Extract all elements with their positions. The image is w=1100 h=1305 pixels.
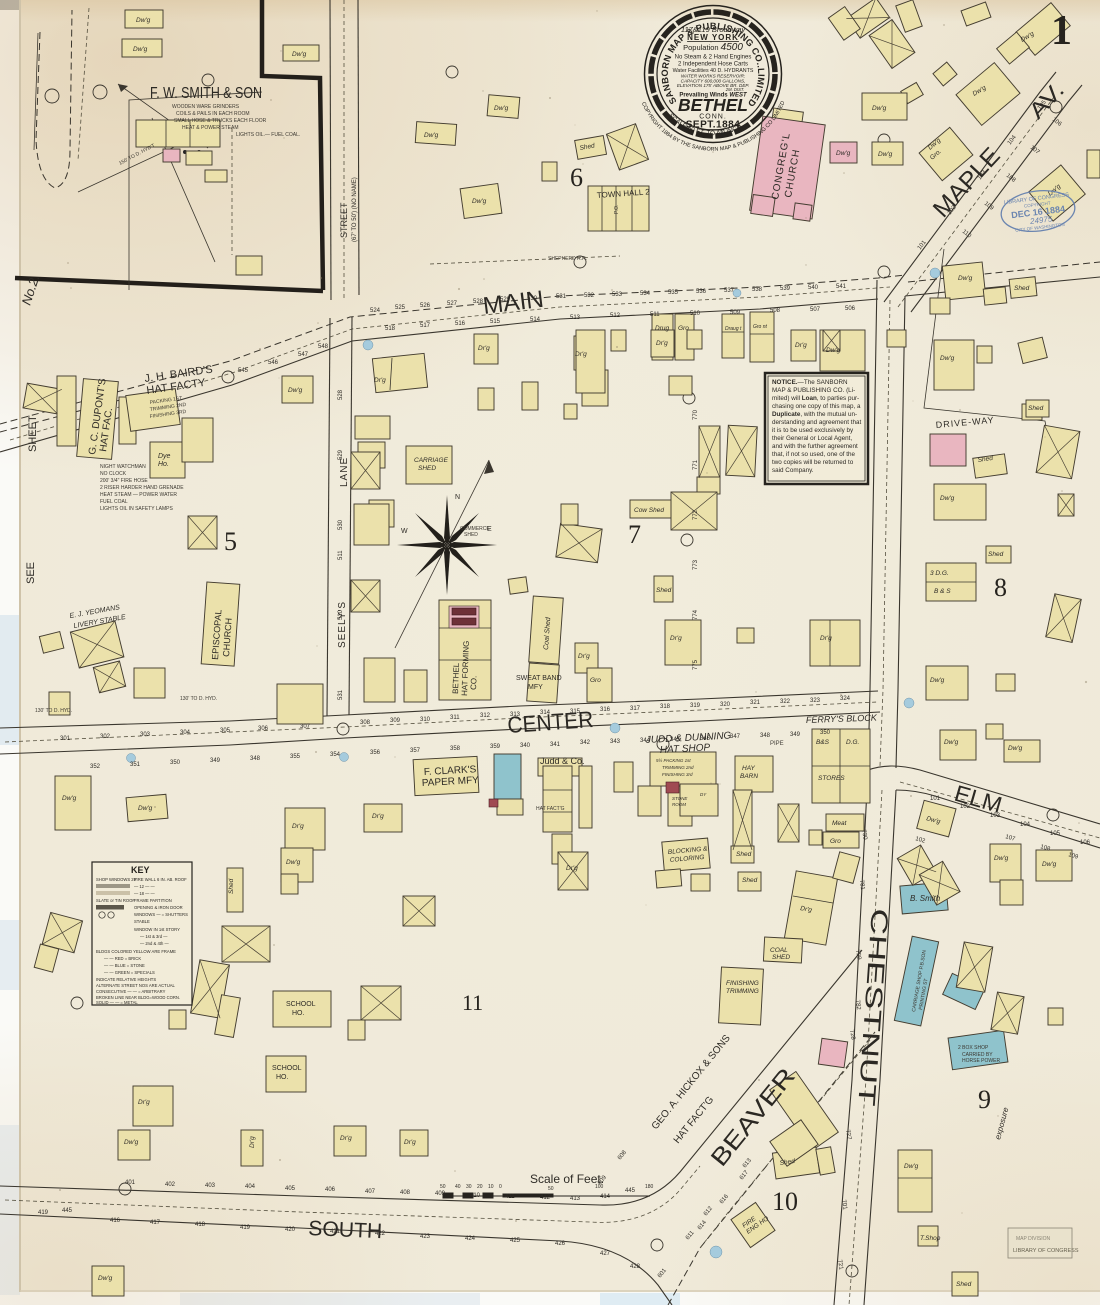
svg-text:INDICATE RELATIVE HEIGHTS: INDICATE RELATIVE HEIGHTS: [96, 977, 156, 982]
svg-text:MAP DIVISION: MAP DIVISION: [1016, 1236, 1050, 1242]
svg-text:Dw'g: Dw'g: [826, 347, 841, 354]
svg-text:said Company.: said Company.: [772, 467, 814, 474]
svg-text:SEPT.1884: SEPT.1884: [686, 120, 741, 131]
svg-text:314: 314: [540, 710, 551, 716]
svg-text:308: 308: [360, 720, 371, 726]
svg-text:Drug: Drug: [655, 325, 669, 332]
svg-text:Draug t: Draug t: [725, 326, 742, 332]
svg-text:Dr'g: Dr'g: [478, 345, 490, 352]
svg-text:445: 445: [625, 1188, 636, 1194]
svg-text:— — RED = BRICK: — — RED = BRICK: [104, 956, 141, 961]
svg-text:Judd & Co.: Judd & Co.: [540, 756, 585, 766]
svg-text:2 BOX SHOP: 2 BOX SHOP: [958, 1045, 989, 1051]
svg-text:Cow Shed: Cow Shed: [634, 507, 664, 514]
svg-text:420: 420: [285, 1227, 296, 1233]
svg-text:405: 405: [285, 1186, 296, 1192]
svg-text:773: 773: [693, 559, 699, 570]
svg-text:D.G.: D.G.: [846, 739, 860, 746]
svg-text:— 18 — —: — 18 — —: [134, 891, 156, 896]
svg-text:356: 356: [370, 750, 381, 756]
svg-text:322: 322: [780, 699, 791, 705]
svg-text:STREET: STREET: [339, 202, 349, 238]
svg-text:P.O.: P.O.: [614, 205, 620, 214]
svg-text:SHEET: SHEET: [27, 415, 39, 452]
svg-text:782: 782: [854, 1000, 861, 1011]
svg-text:532: 532: [584, 293, 595, 299]
svg-text:539: 539: [780, 286, 791, 292]
svg-text:FINISHING: FINISHING: [726, 980, 759, 987]
svg-text:NOTICE.—The SANBORN: NOTICE.—The SANBORN: [772, 379, 848, 386]
svg-text:425: 425: [510, 1238, 521, 1244]
svg-text:SLATE or TIN ROOF: SLATE or TIN ROOF: [96, 898, 135, 903]
svg-text:Dw'g: Dw'g: [940, 355, 955, 362]
svg-text:408: 408: [400, 1190, 411, 1196]
svg-text:535: 535: [668, 290, 679, 296]
svg-text:Dw'g: Dw'g: [944, 739, 959, 746]
svg-text:WOODEN WARE GRINDERS: WOODEN WARE GRINDERS: [172, 104, 240, 110]
svg-text:that, if not so used, one of t: that, if not so used, one of the: [772, 451, 855, 458]
svg-text:Shed: Shed: [988, 551, 1004, 558]
svg-text:Meat: Meat: [832, 820, 848, 827]
svg-text:Shed: Shed: [1028, 405, 1044, 412]
svg-text:410: 410: [470, 1193, 481, 1199]
svg-text:FRAME PARTITION: FRAME PARTITION: [134, 898, 172, 903]
svg-text:Dw'g: Dw'g: [836, 150, 851, 157]
svg-text:528: 528: [473, 299, 484, 305]
svg-text:LIBRARY OF CONGRESS: LIBRARY OF CONGRESS: [1013, 1248, 1079, 1254]
svg-text:416: 416: [110, 1218, 121, 1224]
svg-text:Dr'g: Dr'g: [340, 1135, 352, 1142]
svg-text:180: 180: [645, 1184, 654, 1190]
svg-text:Dw'g: Dw'g: [472, 198, 487, 205]
svg-text:HEAT STEAM — POWER WATER: HEAT STEAM — POWER WATER: [100, 492, 177, 498]
svg-text:NO CLOCK: NO CLOCK: [100, 471, 127, 477]
svg-text:422: 422: [375, 1231, 386, 1237]
svg-text:518: 518: [385, 326, 396, 332]
svg-text:MFY: MFY: [528, 684, 543, 691]
svg-text:Dw'g: Dw'g: [940, 495, 955, 502]
svg-text:533: 533: [612, 292, 623, 298]
svg-text:345: 345: [670, 737, 681, 743]
svg-text:343: 343: [610, 739, 621, 745]
svg-text:310: 310: [420, 717, 431, 723]
svg-text:Dw'g: Dw'g: [878, 151, 893, 158]
svg-text:355: 355: [290, 754, 301, 760]
svg-text:411: 411: [505, 1194, 515, 1200]
svg-text:— 1st & 3rd —: — 1st & 3rd —: [140, 934, 168, 939]
svg-text:derstanding and agreement that: derstanding and agreement that: [772, 419, 862, 426]
svg-text:Dr'g: Dr'g: [249, 1136, 256, 1148]
svg-text:302: 302: [100, 734, 111, 740]
svg-text:Dr'g: Dr'g: [820, 635, 832, 642]
svg-text:771: 771: [693, 459, 699, 470]
svg-text:509: 509: [730, 310, 741, 316]
svg-text:531: 531: [556, 294, 567, 300]
svg-text:412: 412: [540, 1195, 551, 1201]
svg-text:Dw'g: Dw'g: [286, 859, 301, 866]
svg-text:HO.: HO.: [292, 1010, 305, 1017]
svg-text:516: 516: [455, 321, 466, 327]
svg-text:Dw'g: Dw'g: [133, 46, 148, 53]
svg-text:Dr'g: Dr'g: [138, 1099, 150, 1106]
svg-text:507: 507: [810, 307, 821, 313]
svg-text:ALTERNATE STREET NOS ARE ACTUA: ALTERNATE STREET NOS ARE ACTUAL: [96, 983, 176, 988]
svg-text:Gro: Gro: [590, 677, 601, 684]
svg-text:0: 0: [499, 1184, 502, 1190]
svg-text:Shed: Shed: [956, 1281, 972, 1288]
svg-text:349: 349: [210, 758, 221, 764]
svg-text:Dr'g: Dr'g: [372, 813, 384, 820]
svg-text:SMALL HOSE & TRUCKS EACH FLOOR: SMALL HOSE & TRUCKS EACH FLOOR: [174, 118, 267, 124]
svg-text:130' TO D. HYD.: 130' TO D. HYD.: [35, 708, 72, 714]
svg-text:517: 517: [420, 323, 431, 329]
svg-text:534: 534: [640, 291, 651, 297]
svg-text:358: 358: [450, 746, 461, 752]
svg-text:SEE: SEE: [25, 562, 37, 584]
svg-text:and with the further agreement: and with the further agreement: [772, 443, 858, 450]
svg-text:307: 307: [300, 724, 311, 730]
svg-text:HAT FACT'G: HAT FACT'G: [536, 806, 565, 812]
svg-text:chasing one copy of this map,: chasing one copy of this map, a: [772, 403, 861, 410]
svg-text:5: 5: [224, 527, 237, 556]
svg-text:303: 303: [140, 732, 151, 738]
svg-text:406: 406: [325, 1187, 336, 1193]
svg-text:413: 413: [570, 1196, 581, 1202]
svg-text:Dr'g: Dr'g: [374, 377, 386, 384]
svg-text:402: 402: [165, 1182, 176, 1188]
svg-text:407: 407: [365, 1189, 376, 1195]
svg-text:305: 305: [220, 728, 231, 734]
svg-text:538: 538: [752, 287, 763, 293]
svg-text:Population 4500: Population 4500: [683, 42, 743, 53]
svg-text:775: 775: [693, 659, 699, 670]
svg-text:NEW YORK: NEW YORK: [687, 33, 739, 42]
svg-text:359: 359: [490, 744, 501, 750]
svg-text:350: 350: [820, 730, 831, 736]
svg-text:5½ PACKING 1st: 5½ PACKING 1st: [656, 757, 691, 763]
svg-text:340: 340: [520, 743, 531, 749]
svg-text:106: 106: [1080, 840, 1091, 846]
svg-text:HAY: HAY: [742, 765, 756, 772]
svg-text:B & S: B & S: [934, 588, 951, 595]
svg-text:344: 344: [640, 738, 651, 744]
svg-text:513: 513: [570, 315, 581, 321]
svg-text:306: 306: [258, 726, 269, 732]
svg-text:BETHEL: BETHEL: [678, 95, 748, 115]
svg-text:524: 524: [370, 308, 381, 314]
svg-text:SOLID — — = METAL: SOLID — — = METAL: [96, 1000, 138, 1005]
svg-text:40: 40: [455, 1184, 461, 1190]
svg-text:Dw'g: Dw'g: [138, 805, 153, 812]
svg-text:HO.: HO.: [276, 1074, 289, 1081]
svg-text:342: 342: [580, 740, 591, 746]
svg-text:DY: DY: [700, 792, 707, 797]
svg-text:— 12 — —: — 12 — —: [134, 884, 156, 889]
svg-text:LIGHTS OIL.— FUEL COAL.: LIGHTS OIL.— FUEL COAL.: [236, 132, 300, 138]
svg-text:Dw'g: Dw'g: [1008, 745, 1023, 752]
svg-text:357: 357: [410, 748, 421, 754]
svg-text:Ho.: Ho.: [158, 461, 169, 468]
svg-text:317: 317: [630, 706, 641, 712]
svg-text:421: 421: [330, 1229, 341, 1235]
svg-text:Dw'g: Dw'g: [904, 1163, 919, 1170]
svg-text:Dr'g: Dr'g: [292, 823, 304, 830]
svg-text:349: 349: [790, 732, 801, 738]
svg-text:50: 50: [548, 1186, 554, 1192]
svg-text:418: 418: [195, 1222, 206, 1228]
svg-text:N: N: [455, 494, 460, 501]
svg-text:50: 50: [440, 1184, 446, 1190]
svg-text:COAL: COAL: [770, 947, 788, 954]
svg-text:417: 417: [150, 1220, 161, 1226]
svg-text:SHED: SHED: [772, 954, 790, 961]
svg-text:6: 6: [570, 163, 583, 192]
svg-text:NIGHT WATCHMAN: NIGHT WATCHMAN: [100, 464, 146, 470]
svg-text:536: 536: [696, 289, 707, 295]
svg-text:105: 105: [1050, 831, 1061, 837]
svg-text:529: 529: [500, 297, 511, 303]
svg-text:540: 540: [808, 285, 819, 291]
svg-text:7: 7: [628, 520, 641, 549]
svg-text:348: 348: [760, 733, 771, 739]
svg-text:10: 10: [772, 1187, 798, 1216]
svg-text:FUEL COAL: FUEL COAL: [100, 499, 128, 505]
svg-text:STABLE: STABLE: [134, 919, 150, 924]
svg-text:541: 541: [836, 284, 847, 290]
svg-text:SHED: SHED: [418, 465, 436, 472]
svg-text:Dye: Dye: [158, 453, 171, 460]
svg-text:546: 546: [268, 360, 279, 366]
svg-text:427: 427: [600, 1251, 611, 1257]
svg-text:426: 426: [555, 1241, 566, 1247]
svg-text:529: 529: [338, 449, 344, 460]
svg-text:548: 548: [318, 344, 329, 350]
svg-text:F. W. SMITH & SON: F. W. SMITH & SON: [150, 85, 262, 102]
svg-text:506: 506: [845, 306, 856, 312]
svg-text:Dr'g: Dr'g: [404, 1139, 416, 1146]
svg-text:CO.: CO.: [469, 676, 478, 691]
svg-text:Gro: Gro: [678, 325, 689, 332]
svg-text:510: 510: [690, 311, 701, 317]
svg-text:403: 403: [205, 1183, 216, 1189]
svg-text:537: 537: [724, 288, 735, 294]
svg-text:KEY: KEY: [131, 865, 150, 875]
svg-text:419: 419: [38, 1210, 49, 1216]
svg-text:508: 508: [770, 308, 781, 314]
svg-text:— — GREEN = SPECIALS: — — GREEN = SPECIALS: [104, 970, 155, 975]
svg-text:347: 347: [730, 734, 741, 740]
svg-text:102: 102: [960, 804, 971, 810]
svg-text:352: 352: [90, 764, 101, 770]
svg-text:FINISHING 3rd: FINISHING 3rd: [662, 772, 693, 777]
svg-text:424: 424: [465, 1236, 476, 1242]
svg-text:2 RISER HARDER HAND GRENADE: 2 RISER HARDER HAND GRENADE: [100, 485, 184, 491]
svg-text:Scale of Feet.: Scale of Feet.: [530, 1172, 604, 1186]
svg-text:511: 511: [650, 312, 660, 318]
svg-text:Dw'g: Dw'g: [62, 795, 77, 802]
svg-text:3 D.G.: 3 D.G.: [930, 570, 949, 577]
svg-text:409: 409: [435, 1191, 446, 1197]
svg-text:WINDOW IN 1st STORY: WINDOW IN 1st STORY: [134, 927, 180, 932]
svg-text:354: 354: [330, 752, 341, 758]
svg-text:Gro: Gro: [830, 838, 841, 845]
svg-text:350: 350: [170, 760, 181, 766]
svg-text:LIGHTS OIL IN SAFETY LAMPS: LIGHTS OIL IN SAFETY LAMPS: [100, 506, 173, 512]
svg-text:324: 324: [840, 696, 851, 702]
svg-text:COILS & PAILS IN EACH ROOM: COILS & PAILS IN EACH ROOM: [176, 111, 250, 117]
svg-text:313: 313: [510, 712, 521, 718]
svg-text:445: 445: [62, 1208, 73, 1214]
svg-text:1: 1: [1051, 8, 1072, 54]
svg-text:515: 515: [490, 319, 501, 325]
svg-text:530: 530: [527, 296, 538, 302]
svg-text:8: 8: [994, 573, 1007, 602]
svg-text:two copies will be returned to: two copies will be returned to: [772, 459, 854, 466]
svg-text:2M. DIST.: 2M. DIST.: [725, 87, 744, 92]
svg-text:20: 20: [477, 1184, 483, 1190]
svg-text:Shed: Shed: [656, 587, 672, 594]
svg-text:414: 414: [600, 1194, 611, 1200]
svg-text:FIRE WALL 6 IN. AB. ROOF: FIRE WALL 6 IN. AB. ROOF: [134, 877, 187, 882]
svg-text:311: 311: [450, 715, 460, 721]
svg-text:547: 547: [298, 352, 309, 358]
svg-text:Dw'g: Dw'g: [124, 1139, 139, 1146]
svg-text:Gro nt: Gro nt: [753, 324, 768, 330]
svg-text:527: 527: [447, 301, 458, 307]
svg-text:SCHOOL: SCHOOL: [272, 1065, 302, 1072]
svg-text:W: W: [401, 528, 408, 535]
svg-text:510: 510: [338, 609, 344, 620]
svg-text:SCHOOL: SCHOOL: [286, 1001, 316, 1008]
svg-text:Dw'g: Dw'g: [494, 105, 509, 112]
svg-text:348: 348: [250, 756, 261, 762]
svg-text:511: 511: [338, 550, 344, 560]
svg-text:T.Shop: T.Shop: [920, 1235, 941, 1242]
svg-text:Dr'g: Dr'g: [795, 342, 807, 349]
svg-text:545: 545: [238, 368, 249, 374]
svg-text:HEAT & POWER STEAM: HEAT & POWER STEAM: [182, 125, 239, 131]
svg-text:772: 772: [693, 509, 699, 520]
svg-text:No Steam & 2 Hand Engines: No Steam & 2 Hand Engines: [675, 55, 752, 61]
svg-text:SHOP WINDOWS 29': SHOP WINDOWS 29': [96, 877, 137, 882]
svg-text:428: 428: [630, 1264, 641, 1270]
svg-text:103: 103: [990, 813, 1001, 819]
svg-text:312: 312: [480, 713, 491, 719]
svg-text:320: 320: [720, 702, 731, 708]
svg-text:781: 781: [858, 880, 865, 891]
svg-text:SWEAT BAND: SWEAT BAND: [516, 675, 562, 682]
svg-text:30: 30: [466, 1184, 472, 1190]
svg-text:315: 315: [570, 709, 581, 715]
svg-text:Shed: Shed: [742, 877, 758, 884]
svg-text:— — BLUE = STONE: — — BLUE = STONE: [104, 963, 145, 968]
svg-text:Dw'g: Dw'g: [872, 105, 887, 112]
svg-text:Dw'g: Dw'g: [930, 677, 945, 684]
svg-text:Dr'g: Dr'g: [566, 865, 578, 872]
svg-text:101: 101: [930, 796, 941, 802]
svg-text:341: 341: [550, 742, 561, 748]
svg-text:MAP & PUBLISHING CO. (Li-: MAP & PUBLISHING CO. (Li-: [772, 387, 855, 394]
svg-text:104: 104: [1020, 822, 1031, 828]
svg-text:STORES: STORES: [818, 775, 845, 782]
svg-text:SOUTH: SOUTH: [308, 1217, 383, 1243]
svg-text:323: 323: [810, 698, 821, 704]
svg-text:SEELY'S: SEELY'S: [337, 601, 348, 648]
svg-text:SHED: SHED: [464, 532, 478, 538]
svg-text:B. Smith: B. Smith: [910, 894, 941, 903]
svg-text:2 Independent Hose Carts: 2 Independent Hose Carts: [678, 62, 748, 68]
svg-text:STONE: STONE: [672, 796, 688, 801]
svg-text:319: 319: [690, 703, 701, 709]
svg-text:423: 423: [420, 1234, 431, 1240]
svg-text:351: 351: [130, 762, 141, 768]
svg-text:BLDGS COLORED YELLOW ARE FRAME: BLDGS COLORED YELLOW ARE FRAME: [96, 949, 176, 954]
svg-text:528: 528: [338, 389, 344, 400]
svg-text:BARN: BARN: [740, 773, 758, 780]
svg-text:HORSE POWER: HORSE POWER: [962, 1058, 1000, 1064]
svg-text:TRIMMING: TRIMMING: [726, 988, 759, 995]
svg-text:it is to be used exclusively b: it is to be used exclusively by: [772, 427, 854, 434]
svg-text:Dw'g: Dw'g: [958, 275, 973, 282]
svg-text:Dw'g: Dw'g: [136, 17, 151, 24]
svg-text:their General or Local Agent,: their General or Local Agent,: [772, 435, 852, 442]
svg-text:11: 11: [462, 990, 483, 1015]
svg-text:Dw'g: Dw'g: [288, 387, 303, 394]
svg-text:mited) will Loan, to parties p: mited) will Loan, to parties pur-: [772, 395, 859, 402]
svg-text:130' TO D. HYD.: 130' TO D. HYD.: [180, 696, 217, 702]
svg-text:Dw'g: Dw'g: [994, 855, 1009, 862]
svg-text:CONSECUTIVE — — = ARBITRARY: CONSECUTIVE — — = ARBITRARY: [96, 989, 166, 994]
svg-text:419: 419: [240, 1225, 251, 1231]
svg-text:525: 525: [395, 305, 406, 311]
svg-text:(67' TO 50') (NO NAME): (67' TO 50') (NO NAME): [352, 177, 358, 242]
svg-text:526: 526: [420, 303, 431, 309]
svg-text:309: 309: [390, 718, 401, 724]
svg-text:Dw'g: Dw'g: [424, 132, 439, 139]
svg-text:770: 770: [693, 409, 699, 420]
svg-text:B&S: B&S: [816, 739, 830, 746]
svg-text:Dw'g: Dw'g: [98, 1275, 113, 1282]
svg-text:531: 531: [338, 689, 344, 700]
svg-text:Shed: Shed: [228, 878, 235, 894]
svg-text:Duplicate, with the mutual un-: Duplicate, with the mutual un-: [772, 411, 857, 418]
svg-text:9: 9: [978, 1085, 991, 1114]
svg-text:401: 401: [125, 1180, 136, 1186]
svg-text:318: 318: [660, 704, 671, 710]
svg-text:PIPE: PIPE: [770, 741, 784, 747]
svg-text:OPENING & IRON DOOR: OPENING & IRON DOOR: [134, 905, 183, 910]
svg-text:— 2nd & 4th —: — 2nd & 4th —: [140, 941, 169, 946]
svg-text:WINDOWS — = SHUTTERS: WINDOWS — = SHUTTERS: [134, 912, 188, 917]
svg-text:774: 774: [693, 609, 699, 620]
svg-text:TRIMMING 2nd: TRIMMING 2nd: [662, 765, 694, 770]
svg-text:346: 346: [700, 736, 711, 742]
svg-text:Dw'g: Dw'g: [1042, 861, 1057, 868]
svg-text:Shed: Shed: [736, 851, 752, 858]
svg-text:SHEPHERD R.R.: SHEPHERD R.R.: [548, 256, 587, 262]
svg-text:10: 10: [488, 1184, 494, 1190]
svg-text:200' 3/4" FIRE HOSE: 200' 3/4" FIRE HOSE: [100, 478, 148, 484]
svg-text:ROOM: ROOM: [672, 802, 686, 807]
svg-text:514: 514: [530, 317, 541, 323]
svg-text:Dr'g: Dr'g: [656, 340, 668, 347]
svg-text:530: 530: [338, 519, 344, 530]
svg-text:Dr'g: Dr'g: [670, 635, 682, 642]
svg-text:CARRIAGE: CARRIAGE: [414, 457, 449, 464]
svg-text:Dr'g: Dr'g: [575, 351, 587, 358]
svg-text:Shed: Shed: [1014, 285, 1030, 292]
svg-text:304: 304: [180, 730, 191, 736]
